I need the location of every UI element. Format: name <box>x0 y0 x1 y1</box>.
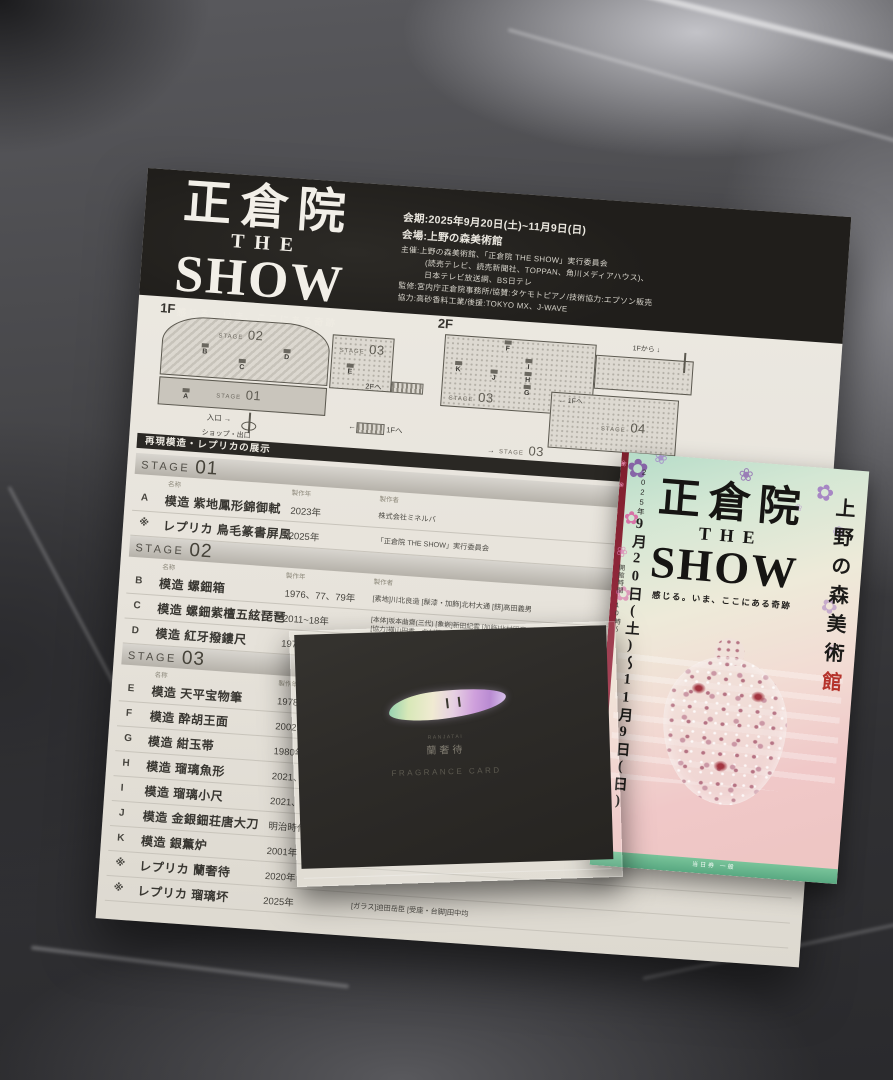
event-info-block: 会期:2025年9月20日(土)~11月9日(日)会場:上野の森美術館主催:上野… <box>397 210 842 334</box>
marker-chip-icon <box>505 340 512 344</box>
row-key: G <box>124 733 133 745</box>
stage-number: 03 <box>528 443 544 459</box>
marker-chip-icon <box>239 359 246 363</box>
ranjatai-hologram <box>387 683 507 725</box>
to-1f-text: 1Fへ <box>567 398 583 406</box>
row-key: E <box>127 683 134 694</box>
fragrance-card-envelope: RANJATAI 蘭奢待 FRAGRANCE CARD <box>294 625 613 869</box>
room-marker: C <box>238 359 246 371</box>
row-key: I <box>120 783 124 794</box>
marker-letter: E <box>347 368 352 375</box>
item-name: 模造 天平宝物筆 <box>151 683 243 706</box>
arrow-right-icon: → <box>223 414 231 424</box>
stage-word: STAGE <box>216 393 241 401</box>
stage-word: STAGE <box>141 459 191 474</box>
stage01-label: STAGE 01 <box>216 384 262 405</box>
title-shosoin: 正倉院 <box>177 178 361 239</box>
fragrance-card-caption: FRAGRANCE CARD <box>298 763 594 781</box>
marble-vein <box>508 28 893 147</box>
from-1f-label: 1Fから ↓ <box>632 343 660 355</box>
marker-chip-icon <box>524 372 531 376</box>
flower-icon: ❀ <box>651 452 670 469</box>
room-marker: D <box>283 349 291 361</box>
venue-vertical-text: 上野の森美術館 <box>814 496 859 701</box>
stairs-icon <box>391 382 424 395</box>
row-key: B <box>135 575 143 586</box>
room-marker: H <box>524 372 532 384</box>
ticket-title-show: SHOW <box>638 539 811 597</box>
venue-name-last-char: 館 <box>817 670 841 701</box>
item-name: 模造 銀薫炉 <box>140 832 207 854</box>
item-year: 1976、77、79年 <box>284 586 356 605</box>
flower-icon: ❀ <box>618 482 624 489</box>
to-2f-label: 2Fへ <box>365 381 382 393</box>
room-marker: F <box>504 340 512 352</box>
marker-chip-icon <box>283 349 290 353</box>
item-name: レプリカ 鳥毛篆書屏風 <box>163 517 293 543</box>
row-key: K <box>117 832 125 843</box>
stage-word: STAGE <box>601 426 626 434</box>
item-year: 2025年 <box>288 528 320 544</box>
stage02-area <box>160 314 332 386</box>
stage-word: STAGE <box>128 649 178 664</box>
stage03-label-2f: STAGE 03 <box>448 387 494 408</box>
ticket-title: 正倉院 THE SHOW 感じる。いま、ここにある奇跡 <box>636 476 815 613</box>
row-key: ※ <box>115 857 125 869</box>
marker-letter: I <box>527 364 529 371</box>
floorplan-1f: STAGE 02 STAGE 03 STAGE 01 入口 → ショップ・出口 … <box>156 312 449 452</box>
marker-letter: G <box>524 390 530 397</box>
marble-vein <box>547 0 893 94</box>
row-key: J <box>119 808 125 819</box>
arrow-right-icon: → <box>487 445 495 455</box>
stage-number: 02 <box>247 327 263 343</box>
room-marker: E <box>346 363 354 375</box>
item-name: 模造 螺鈿箱 <box>158 575 225 597</box>
marker-chip-icon <box>455 361 462 365</box>
marble-vein <box>31 946 349 989</box>
stage-number: 01 <box>245 387 261 403</box>
stairs-icon <box>356 422 385 435</box>
room-marker: I <box>525 359 533 371</box>
plastic-sleeve: RANJATAI 蘭奢待 FRAGRANCE CARD <box>289 621 623 887</box>
marker-chip-icon <box>182 388 189 392</box>
row-key: C <box>133 600 141 611</box>
photo-scene: 正倉院 THE SHOW 感じる。いま、ここにある奇跡 会期:2025年9月20… <box>0 0 893 1080</box>
item-name: レプリカ 瑠璃坏 <box>137 882 229 905</box>
venue-name: 上野の森美術 <box>819 497 855 672</box>
item-year: 2023年 <box>290 503 322 519</box>
row-key: H <box>122 758 130 769</box>
item-maker: [ガラス]迫田岳臣 [受座・台脚]田中均 <box>351 901 469 919</box>
marker-letter: H <box>525 377 531 384</box>
marker-letter: C <box>239 364 245 371</box>
corridor-2f <box>594 355 694 396</box>
item-year: 2020年 <box>264 868 296 884</box>
room-marker: G <box>523 385 531 397</box>
item-year: 2011~18年 <box>282 611 329 628</box>
entrance-text: 入口 <box>206 413 222 423</box>
stage-number: 03 <box>181 647 206 671</box>
to-1f-label: 1Fへ <box>386 424 403 436</box>
marker-chip-icon <box>525 359 532 363</box>
arrow-down-icon: ↓ <box>656 347 660 354</box>
to-1f-arrow: ← <box>348 422 356 432</box>
row-key: ※ <box>139 517 149 529</box>
arrow-left-icon: ← <box>559 397 566 404</box>
stage-number: 04 <box>630 420 646 436</box>
room-marker: J <box>490 369 498 381</box>
to-1f-label-2f: ← 1Fへ <box>558 395 583 407</box>
item-name: 模造 瑠璃魚形 <box>146 757 226 779</box>
stage-word: STAGE <box>499 449 524 457</box>
stage-word: STAGE <box>448 396 473 404</box>
marker-chip-icon <box>524 385 531 389</box>
row-key: D <box>131 625 139 636</box>
entrance-label: 入口 → <box>206 412 231 425</box>
room-marker: A <box>182 388 190 400</box>
item-name: 模造 紅牙撥鏤尺 <box>155 625 247 648</box>
item-maker: 「正倉院 THE SHOW」実行委員会 <box>376 536 489 554</box>
stage-word: STAGE <box>218 333 243 341</box>
room-marker: B <box>201 343 209 355</box>
marker-chip-icon <box>202 343 209 347</box>
marker-letter: J <box>491 374 495 381</box>
floorplan-2f: STAGE 03 1Fから ↓ ← 1Fへ STAGE 04 → STAGE 0… <box>431 328 701 468</box>
from-1f-text: 1Fから <box>632 345 655 354</box>
room-marker: K <box>454 361 462 373</box>
item-year: 2001年 <box>266 843 298 859</box>
marker-letter: F <box>505 345 510 352</box>
envelope-text: RANJATAI 蘭奢待 FRAGRANCE CARD <box>297 730 594 781</box>
row-key: A <box>141 492 149 503</box>
stage-word: STAGE <box>135 542 185 557</box>
stage-number: 02 <box>189 539 214 563</box>
stage-number: 03 <box>369 342 385 358</box>
date-year: 2025年 <box>636 467 649 516</box>
row-key: F <box>126 708 133 719</box>
marker-letter: B <box>202 348 208 355</box>
item-name: レプリカ 蘭奢待 <box>139 857 231 880</box>
item-name: 模造 酔胡王面 <box>149 707 229 729</box>
stage-number: 01 <box>194 457 219 481</box>
item-name: 模造 瑠璃小尺 <box>144 782 224 804</box>
stage04-label: STAGE 04 <box>600 417 646 438</box>
flower-icon: ❀ <box>620 460 627 469</box>
marker-letter: A <box>183 393 189 400</box>
marker-chip-icon <box>347 363 354 367</box>
admission-ticket: ✿❀❀✿❁✿❀✿❀✿❀❀✾❀❀ 正倉院 THE SHOW 感じる。いま、ここにあ… <box>590 452 870 884</box>
item-maker: 株式会社ミネルバ <box>378 511 436 525</box>
arrow-left-icon: ← <box>348 422 356 432</box>
item-year: 2025年 <box>263 893 295 909</box>
marker-chip-icon <box>491 369 498 373</box>
stage02-label: STAGE 02 <box>218 324 264 345</box>
item-name: 模造 紺玉帯 <box>147 732 214 754</box>
stage03-label-1f: STAGE 03 <box>339 339 385 360</box>
stage-word: STAGE <box>340 348 365 356</box>
marker-letter: D <box>284 354 290 361</box>
stage-number: 03 <box>478 390 494 406</box>
row-key: ※ <box>113 882 123 894</box>
marker-letter: K <box>455 366 461 373</box>
